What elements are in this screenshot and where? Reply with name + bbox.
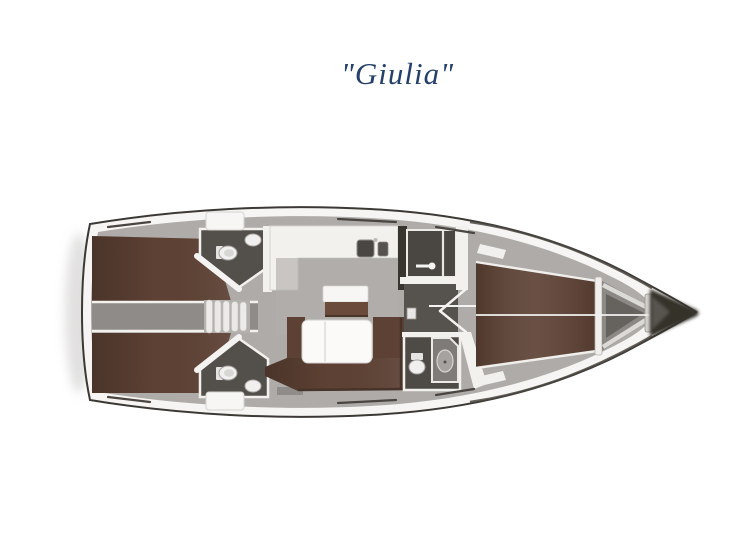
sofa-backrest — [298, 389, 403, 390]
stair-step — [206, 300, 213, 333]
stair-step — [215, 301, 222, 333]
mid-wall-top — [400, 277, 462, 284]
companionway — [92, 300, 258, 333]
chart-table-base — [325, 302, 368, 317]
stair-step — [223, 301, 230, 332]
bed-footboard — [595, 277, 602, 355]
shower-room-box — [407, 230, 456, 277]
salon-table — [302, 320, 372, 363]
toilet-bowl — [224, 249, 234, 257]
yacht-floorplan — [0, 0, 737, 552]
stair-step — [240, 302, 247, 331]
galley-sink-small — [378, 242, 388, 256]
stair-step — [232, 302, 239, 332]
shower-arm — [416, 265, 430, 268]
sink-icon — [245, 234, 261, 246]
galley-sink — [357, 240, 374, 257]
switch-panel — [407, 308, 416, 319]
faucet-icon — [374, 238, 378, 242]
shower-room — [407, 230, 456, 277]
sink-icon — [245, 380, 261, 392]
forward-head — [404, 336, 460, 390]
shower-head-icon — [429, 263, 436, 270]
toilet-bowl — [224, 369, 234, 377]
salon — [265, 258, 404, 395]
forward-bulkhead-top — [456, 226, 468, 290]
deck-locker — [206, 392, 244, 410]
page: "Giulia" — [0, 0, 737, 552]
chart-table-top — [323, 286, 368, 302]
toilet-tank — [411, 353, 423, 360]
drain-icon — [444, 361, 447, 364]
toilet-icon — [409, 360, 425, 374]
deck-locker — [206, 212, 244, 230]
